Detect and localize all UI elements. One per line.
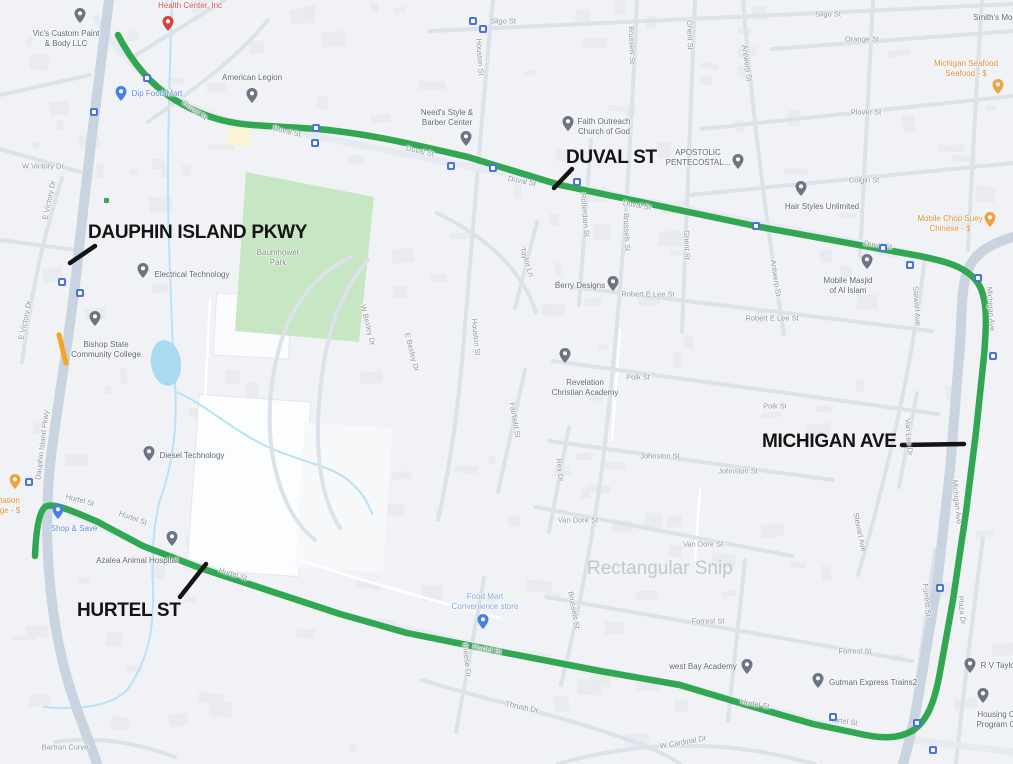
apostolic-pentecostal-label: APOSTOLICPENTECOSTAL...: [666, 148, 731, 167]
street-label: Bartran Curve: [42, 743, 89, 752]
street-label: Plaza Dr: [956, 595, 968, 625]
revelation-christian-academy-pin[interactable]: [560, 348, 571, 363]
bus-stop-icon[interactable]: [573, 178, 581, 186]
bishop-state-college-pin[interactable]: [90, 311, 101, 326]
health-center-label: Health Center, Inc: [158, 1, 222, 11]
street-label: Plover St: [851, 108, 881, 117]
street-label: Polk St: [763, 402, 787, 411]
street-label: Duval St: [863, 239, 892, 252]
street-label: Houston St: [474, 38, 486, 76]
street-label: Hurtel St: [472, 642, 502, 656]
gutman-express-trains-label: Gutman Express Trains2: [829, 678, 917, 688]
street-label: Ghent St: [685, 20, 695, 50]
shop-and-save-label: Shop & Save: [51, 524, 98, 534]
needs-style-barber-label: Need's Style &Barber Center: [421, 108, 473, 127]
berry-designs-label: Berry Designs: [555, 281, 605, 291]
annotation-hurtel-st: HURTEL ST: [77, 600, 181, 622]
annotation-dauphin-island-pkwy: DAUPHIN ISLAND PKWY: [88, 222, 307, 244]
bus-stop-icon[interactable]: [929, 746, 937, 754]
street-label: Dauphin Island Pkwy: [33, 410, 50, 481]
bus-stop-icon[interactable]: [25, 478, 33, 486]
street-label: Duval St: [622, 198, 651, 212]
diesel-technology-label: Diesel Technology: [160, 451, 225, 461]
bus-stop-icon[interactable]: [989, 352, 997, 360]
bus-stop-icon[interactable]: [143, 74, 151, 82]
street-label: Robert E Lee St: [745, 314, 798, 323]
berry-designs-pin[interactable]: [608, 276, 619, 291]
street-label: Duval St: [181, 98, 209, 122]
mobile-masjid-pin[interactable]: [862, 254, 873, 269]
housing-program-pin[interactable]: [978, 688, 989, 703]
street-label: Hurtel St: [218, 565, 249, 582]
street-label: Sligo St: [490, 17, 516, 26]
bus-stop-icon[interactable]: [489, 164, 497, 172]
bus-stop-icon[interactable]: [879, 244, 887, 252]
food-mart-convenience-label: Food MartConvenience store: [452, 592, 519, 611]
street-label: E Bexley Dr: [403, 332, 421, 373]
street-label: Taylor Ln: [518, 246, 536, 278]
american-legion-label: American Legion: [222, 73, 282, 83]
american-legion-pin[interactable]: [247, 88, 258, 103]
street-label: Stewart Ave: [851, 512, 868, 553]
street-label: Duval St: [272, 123, 302, 139]
bus-stop-icon[interactable]: [312, 124, 320, 132]
bus-stop-icon[interactable]: [479, 25, 487, 33]
street-label: Forrest St: [839, 647, 872, 656]
bus-stop-icon[interactable]: [906, 261, 914, 269]
bus-stop-icon[interactable]: [76, 289, 84, 297]
street-label: Orange St: [845, 35, 879, 44]
street-label: Ghent St: [682, 230, 692, 260]
street-label: Johnston St: [718, 467, 758, 476]
street-label: Houston St: [470, 318, 483, 356]
west-bay-academy-pin[interactable]: [742, 659, 753, 674]
street-label: Van Dore St: [558, 516, 598, 525]
street-label: Robert E Lee St: [621, 290, 674, 299]
label-layer: Rectangular Snip Sligo StSligo StOrange …: [0, 0, 1013, 764]
faith-outreach-church-pin[interactable]: [563, 116, 574, 131]
street-label: Thrush Dr: [505, 699, 539, 715]
street-label: Polk St: [626, 373, 650, 382]
street-label: Antwerp St: [740, 44, 754, 82]
michigan-seafood-label: Michigan SeafoodSeafood - $: [934, 59, 998, 78]
revelation-christian-academy-label: RevelationChristian Academy: [552, 378, 619, 397]
street-label: Brussels St: [627, 26, 637, 64]
michigan-seafood-pin[interactable]: [993, 79, 1004, 94]
street-label: E Victory Dr: [40, 180, 57, 221]
bus-stop-icon[interactable]: [90, 108, 98, 116]
needs-style-barber-pin[interactable]: [461, 131, 472, 146]
diesel-technology-pin[interactable]: [144, 446, 155, 461]
bus-stop-icon[interactable]: [469, 17, 477, 25]
street-label: Van Lee Dr: [903, 418, 915, 456]
dip-food-mart-label: Dip Food Mart: [132, 89, 183, 99]
street-label: Antwerp St: [769, 259, 783, 297]
smiths-mon-label: Smith's Mon: [973, 13, 1013, 23]
rv-taylor-pin[interactable]: [965, 658, 976, 673]
vics-custom-paint-body-label: Vic's Custom Paint& Body LLC: [33, 29, 100, 48]
street-label: Forrest St: [921, 583, 933, 617]
electrical-technology-pin[interactable]: [138, 263, 149, 278]
hair-styles-unlimited-label: Hair Styles Unlimited: [785, 202, 859, 212]
baumhower-park-label: BaumhowerPark: [257, 248, 300, 267]
street-label: Stewart Ave: [911, 286, 923, 326]
electrical-technology-label: Electrical Technology: [154, 270, 229, 280]
street-label: Rex Dr: [554, 458, 565, 482]
hair-styles-unlimited-pin[interactable]: [796, 181, 807, 196]
street-label: Michigan Ave: [950, 479, 964, 524]
apostolic-pentecostal-pin[interactable]: [733, 154, 744, 169]
station-label: tationge - $: [0, 496, 20, 515]
health-center-pin[interactable]: [163, 16, 174, 31]
rv-taylor-label: R V Taylor: [981, 661, 1013, 671]
mobile-chop-suey-label: Mobile Chop SueyChinese - $: [917, 214, 982, 233]
street-label: Brussels St: [622, 213, 632, 251]
street-label: Duval St: [507, 174, 537, 188]
street-label: Hurtel St: [65, 492, 96, 508]
bishop-state-college-label: Bishop StateCommunity College: [71, 340, 141, 359]
annotation-duval-st: DUVAL ST: [566, 147, 657, 169]
bus-stop-icon[interactable]: [913, 719, 921, 727]
street-label: Van Dore St: [683, 540, 723, 549]
food-mart-convenience-pin[interactable]: [478, 614, 489, 629]
dip-food-mart-pin[interactable]: [116, 86, 127, 101]
shop-and-save-pin[interactable]: [53, 504, 64, 519]
housing-program-label: Housing CProgram O: [976, 710, 1013, 729]
vics-custom-paint-body-pin[interactable]: [75, 8, 86, 23]
faith-outreach-church-label: Faith OutreachChurch of God: [578, 117, 631, 136]
street-label: W Cardinal Dr: [659, 733, 707, 750]
bus-stop-icon[interactable]: [829, 713, 837, 721]
street-label: Hurtel St: [118, 509, 149, 527]
gutman-express-trains-pin[interactable]: [813, 673, 824, 688]
street-label: Duval St: [405, 144, 435, 159]
street-label: W Bexley Dr: [359, 304, 378, 347]
street-label: Sligo St: [815, 10, 841, 19]
street-label: E Victory Dr: [16, 300, 33, 341]
mobile-masjid-label: Mobile Masjidof Al Islam: [824, 276, 873, 295]
west-bay-academy-label: west Bay Academy: [669, 662, 737, 672]
azalea-animal-hospital-label: Azalea Animal Hospital: [96, 556, 178, 566]
street-label: W Victory Dr: [22, 162, 64, 171]
street-label: Fairfield St: [507, 402, 522, 439]
street-label: Brussels St: [566, 591, 581, 630]
mobile-chop-suey-pin[interactable]: [985, 212, 996, 227]
station-pin[interactable]: [10, 474, 21, 489]
street-label: Michigan Ave: [985, 286, 997, 331]
bus-stop-icon[interactable]: [752, 222, 760, 230]
snipping-tool-watermark: Rectangular Snip: [587, 558, 733, 580]
map-screenshot: Rectangular Snip Sligo StSligo StOrange …: [0, 0, 1013, 764]
bus-stop-icon[interactable]: [936, 584, 944, 592]
annotation-michigan-ave: MICHIGAN AVE: [762, 431, 897, 453]
bus-stop-icon[interactable]: [447, 162, 455, 170]
street-label: Forrest St: [692, 617, 725, 626]
street-label: Hurtel St: [740, 697, 770, 711]
bus-stop-icon[interactable]: [311, 139, 319, 147]
street-label: Rotterdam St: [579, 193, 592, 238]
bus-stop-icon[interactable]: [974, 274, 982, 282]
street-label: Johnston St: [640, 452, 680, 461]
street-label: Colgin St: [849, 176, 879, 185]
azalea-animal-hospital-pin[interactable]: [167, 531, 178, 546]
bus-stop-icon[interactable]: [58, 278, 66, 286]
